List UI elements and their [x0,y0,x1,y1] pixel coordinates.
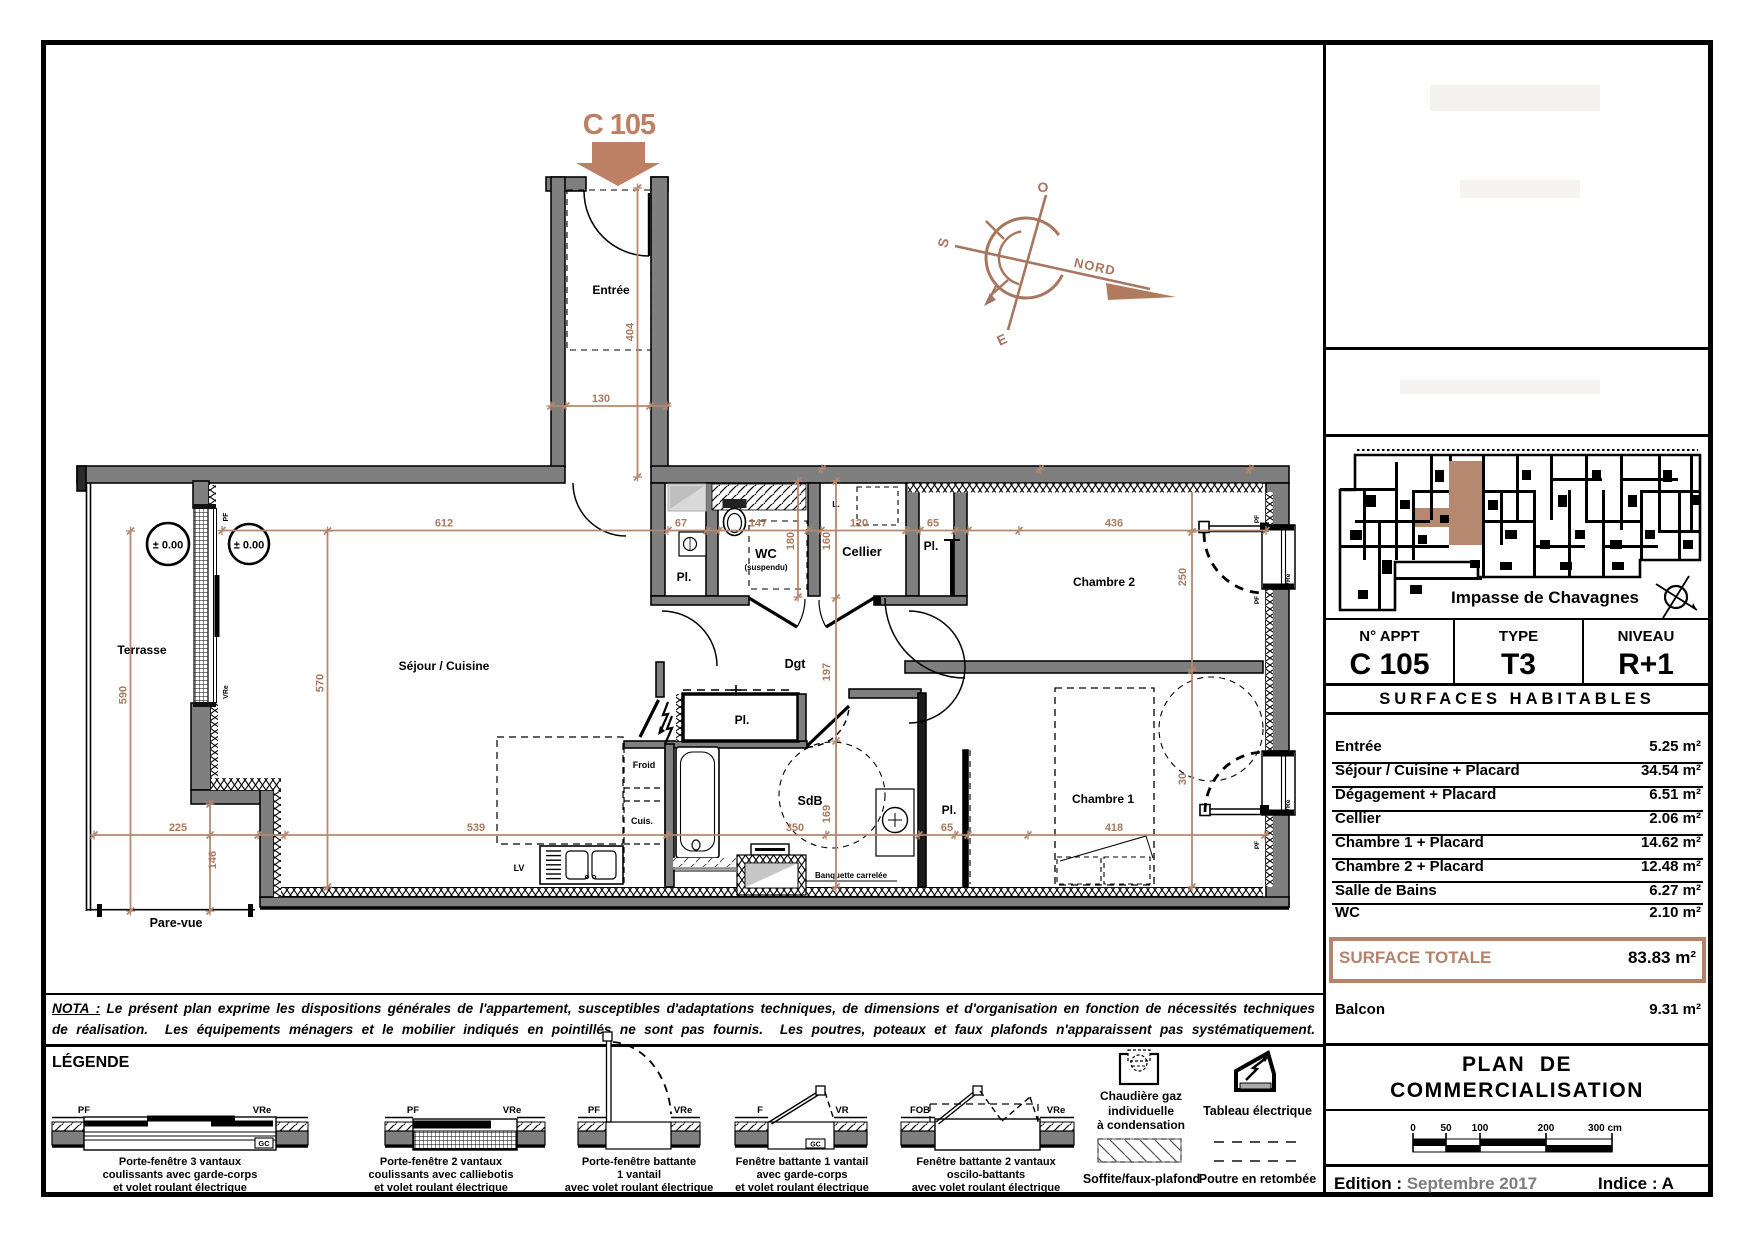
svg-text:120: 120 [850,518,868,530]
svg-text:590: 590 [118,686,130,704]
svg-text:146: 146 [207,851,219,869]
svg-text:147: 147 [749,518,767,530]
svg-text:VRe: VRe [1285,799,1292,812]
svg-text:PF: PF [1254,841,1261,849]
svg-text:E: E [994,330,1009,348]
svg-text:200: 200 [1538,1123,1555,1134]
svg-text:418: 418 [1105,822,1123,834]
svg-text:SdB: SdB [798,794,823,808]
svg-text:250: 250 [1177,568,1189,586]
svg-text:65: 65 [927,518,939,530]
svg-text:LV: LV [514,863,525,873]
svg-text:PF: PF [1254,596,1261,604]
svg-text:VRe: VRe [1047,1105,1065,1116]
svg-text:VR: VR [835,1105,848,1116]
svg-text:100: 100 [1472,1123,1489,1134]
svg-text:30: 30 [1177,773,1189,785]
svg-text:VRe: VRe [1285,573,1292,586]
svg-text:Cuis.: Cuis. [631,816,653,826]
svg-text:130: 130 [592,393,610,405]
svg-text:Cellier: Cellier [842,544,882,559]
svg-text:S: S [934,236,952,249]
svg-text:350: 350 [786,822,804,834]
svg-text:VRe: VRe [674,1105,692,1116]
svg-text:300 cm: 300 cm [1588,1123,1622,1134]
svg-text:Dgt: Dgt [785,657,807,671]
svg-text:PF: PF [588,1105,600,1116]
svg-text:WC: WC [755,546,777,561]
svg-text:225: 225 [169,822,187,834]
svg-text:67: 67 [675,518,687,530]
svg-text:50: 50 [1440,1123,1452,1134]
svg-text:GC: GC [258,1139,270,1148]
svg-text:± 0.00: ± 0.00 [153,540,184,552]
svg-text:F: F [757,1105,763,1116]
svg-text:O: O [1038,179,1049,195]
svg-text:PF: PF [407,1105,419,1116]
svg-text:539: 539 [467,822,485,834]
svg-text:NORD: NORD [1073,255,1117,278]
svg-text:C 105: C 105 [583,109,656,141]
svg-text:VRe: VRe [503,1105,521,1116]
svg-text:Terrasse: Terrasse [117,643,166,657]
svg-text:Séjour / Cuisine: Séjour / Cuisine [399,659,490,673]
svg-text:160: 160 [821,532,833,550]
svg-text:Pl.: Pl. [735,713,750,727]
svg-text:Pare-vue: Pare-vue [150,916,203,930]
svg-text:65: 65 [941,822,953,834]
svg-text:VRe: VRe [253,1105,271,1116]
svg-text:Pl.: Pl. [924,539,939,553]
svg-text:PF: PF [78,1105,90,1116]
svg-text:Entrée: Entrée [592,283,630,297]
svg-text:Banquette carrelée: Banquette carrelée [815,871,888,880]
svg-text:0: 0 [1410,1123,1416,1134]
svg-text:Pl.: Pl. [942,803,957,817]
svg-text:612: 612 [435,518,453,530]
svg-text:VRe: VRe [223,685,230,699]
svg-text:197: 197 [821,663,833,681]
svg-text:± 0.00: ± 0.00 [234,540,265,552]
svg-text:436: 436 [1105,518,1123,530]
svg-text:(suspendu): (suspendu) [744,563,787,572]
svg-text:Pl.: Pl. [677,570,692,584]
svg-text:169: 169 [821,805,833,823]
svg-text:Chambre 1: Chambre 1 [1072,792,1134,806]
svg-text:PF: PF [1254,515,1261,523]
svg-text:PF: PF [223,512,230,522]
svg-text:Froid: Froid [633,760,656,770]
svg-text:GC: GC [810,1142,821,1149]
svg-text:404: 404 [625,322,637,341]
svg-text:FOB: FOB [910,1105,930,1116]
svg-text:Chambre 2: Chambre 2 [1073,575,1135,589]
svg-text:Impasse de Chavagnes: Impasse de Chavagnes [1451,588,1639,607]
svg-text:180: 180 [785,532,797,550]
svg-text:570: 570 [315,674,327,692]
